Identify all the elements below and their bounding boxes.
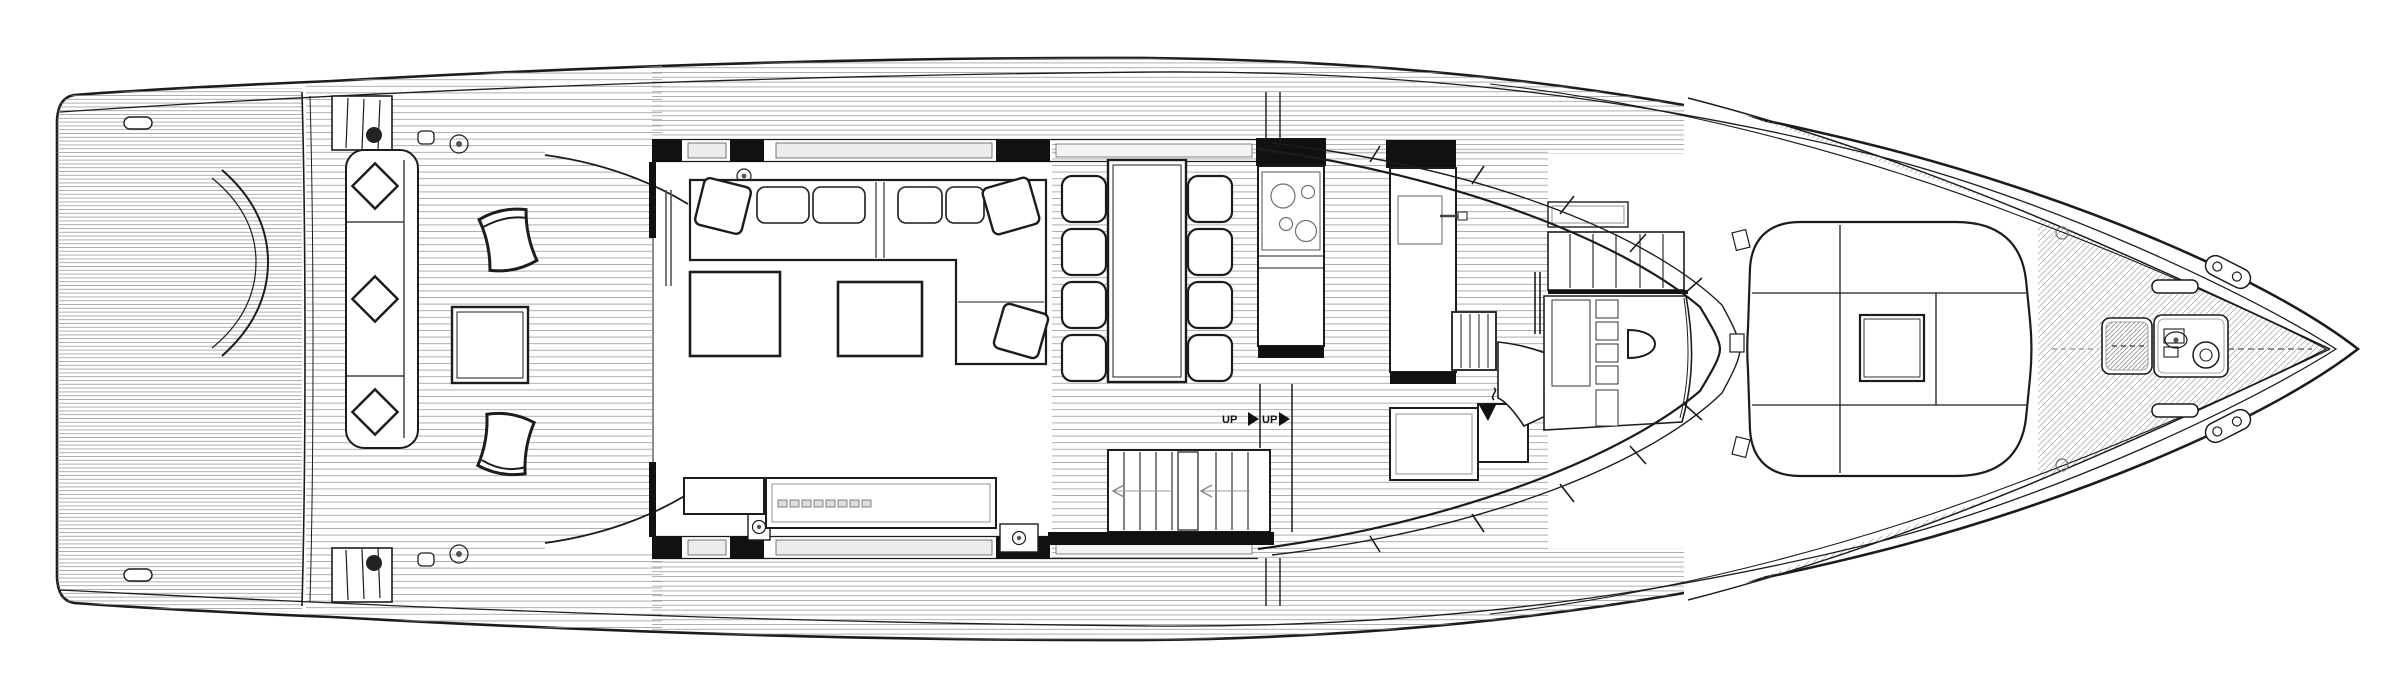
- transom-steps-port: [332, 96, 392, 150]
- staircase-aft-wall: [1048, 532, 1274, 545]
- dining-window-port: [1056, 144, 1252, 157]
- stern-cleat-port: [124, 117, 152, 129]
- dining-chair-1: [1062, 176, 1106, 222]
- stairs-up-label-1: UP: [1222, 414, 1237, 426]
- dining-chair-2: [1062, 229, 1106, 275]
- floor-plan-canvas: UP UP: [0, 0, 2400, 698]
- galley-tall-cabinet-port: [1256, 138, 1326, 166]
- sideboard-small: [684, 478, 764, 514]
- bow-cleat-port: [2152, 280, 2198, 293]
- aft-pouf-starboard: [477, 410, 535, 477]
- coffee-table-2: [838, 282, 922, 356]
- dining-chair-6: [1188, 229, 1232, 275]
- swim-platform-teak: [56, 88, 302, 612]
- dining-chair-3: [1062, 282, 1106, 328]
- salon-window-small-port: [688, 143, 726, 158]
- stern-cleat-starboard: [124, 569, 152, 581]
- sofa-back-cushion-4: [946, 187, 984, 223]
- sofa-end-pillow-left: [694, 177, 752, 235]
- bow-cleat-starboard: [2152, 404, 2198, 417]
- galley-counter-port-cap: [1258, 346, 1324, 358]
- windlass-capstan-center: [2173, 337, 2178, 342]
- staircase-divider: [1178, 452, 1198, 530]
- coffee-table-1: [690, 272, 780, 356]
- sofa-back-cushion-2: [813, 187, 865, 223]
- starboard-side-deck-teak: [652, 548, 1750, 642]
- galley-island-counter: [1390, 168, 1456, 372]
- sofa-back-cushion-3: [898, 187, 942, 223]
- dining-area: [1062, 160, 1232, 382]
- windlass-box: [2154, 315, 2228, 377]
- dining-chair-7: [1188, 282, 1232, 328]
- transom-steps-starboard: [332, 548, 392, 602]
- table-top-outer: [452, 307, 528, 383]
- faucet-knob: [1458, 212, 1467, 220]
- slatted-bench: [1452, 312, 1496, 370]
- deck-cleat-starboard: [418, 553, 434, 566]
- aft-coffee-table: [452, 307, 528, 383]
- yacht-main-deck-plan: UP UP: [0, 0, 2400, 698]
- sofa-back-cushion-1: [757, 187, 809, 223]
- anchor-locker-hatch: [2102, 318, 2152, 374]
- salon-corner-fitting-bottom-2: [1000, 524, 1038, 552]
- helm-bulkhead: [1548, 290, 1688, 294]
- transom-fitting-starboard: [366, 555, 382, 571]
- galley-island-cap: [1390, 372, 1456, 384]
- console-panel-left: [1552, 300, 1590, 386]
- transom-sofa: [346, 150, 418, 448]
- foredeck-lounge: [1730, 222, 2032, 476]
- dining-chair-4: [1062, 335, 1106, 381]
- pouf-outline: [477, 410, 535, 477]
- sideboard-long: [766, 478, 996, 528]
- deck-cleat-port: [418, 131, 434, 144]
- dining-table: [1108, 160, 1186, 382]
- foredeck-table: [1860, 315, 1924, 381]
- cabinet-block-1: [1390, 408, 1478, 480]
- stairs-up-label-2: UP: [1262, 414, 1277, 426]
- dining-chair-5: [1188, 176, 1232, 222]
- salon-window-long-starboard: [776, 540, 992, 555]
- transom-fitting-port: [366, 127, 382, 143]
- salon-window-small-starboard: [688, 540, 726, 555]
- salon-window-long-port: [776, 143, 992, 158]
- dining-chair-8: [1188, 335, 1232, 381]
